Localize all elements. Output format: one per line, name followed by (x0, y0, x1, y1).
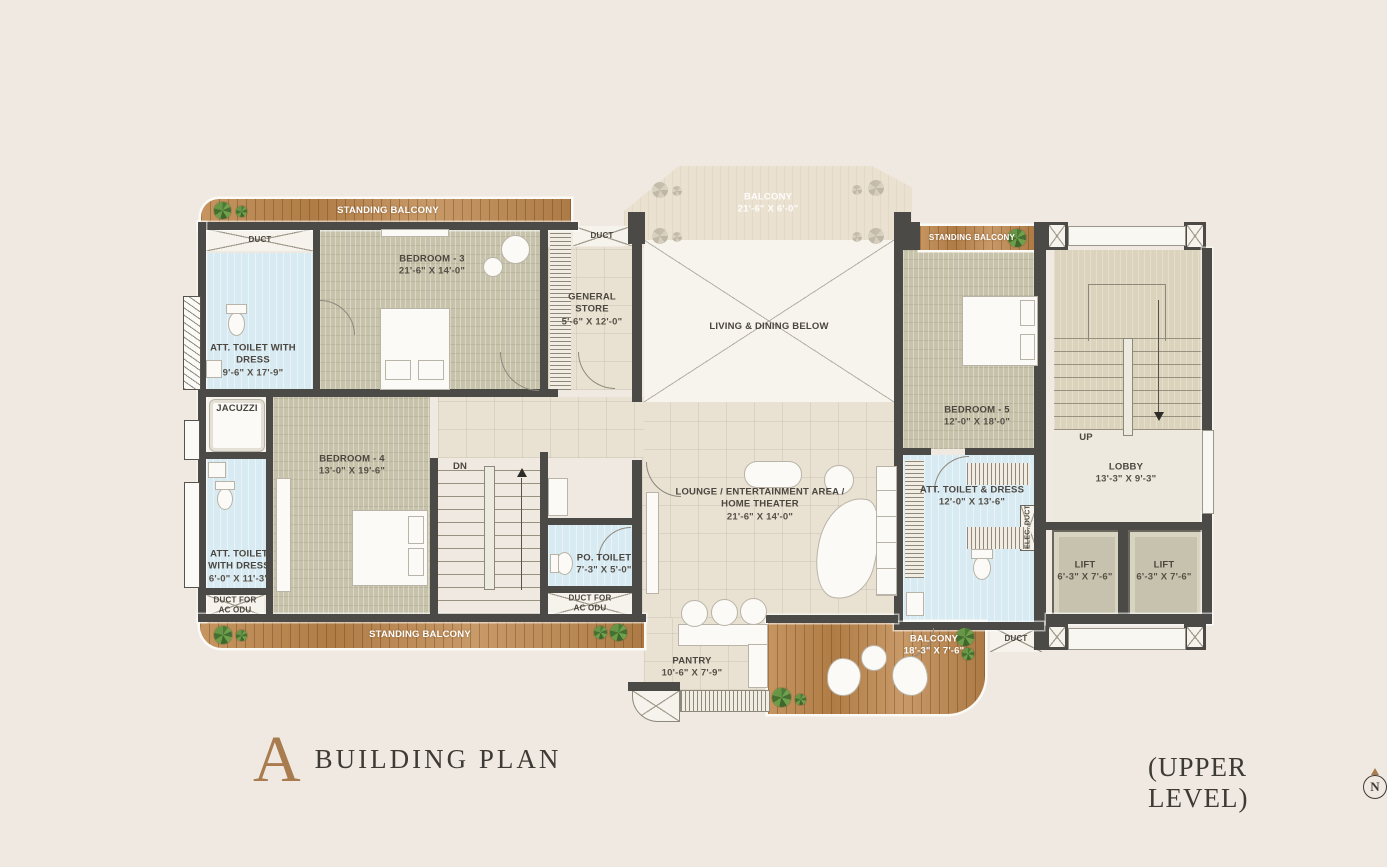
label-jacuzzi: JACUZZI (216, 403, 258, 415)
label-general-store: GENERAL STORE 5'-6" X 12'-0" (554, 291, 630, 328)
wall (204, 452, 266, 459)
window-left (184, 420, 200, 460)
pillow (408, 516, 424, 544)
plant-faded (852, 185, 862, 195)
plant (236, 206, 247, 217)
plant-faded (652, 182, 668, 198)
label-balcony-top: BALCONY 21'-6" X 6'-0" (738, 192, 799, 217)
wall (903, 222, 920, 250)
label-standing-balcony-top: STANDING BALCONY (337, 205, 439, 217)
plant (772, 688, 791, 707)
plant (236, 630, 247, 641)
wall (1118, 530, 1128, 618)
wall (1046, 522, 1204, 530)
wardrobe-toilet5-mid (967, 527, 1031, 549)
label-standing-balcony-bottom: STANDING BALCONY (369, 629, 471, 641)
label-living-dining: LIVING & DINING BELOW (709, 321, 828, 333)
wall (198, 614, 646, 622)
pouf (483, 257, 503, 277)
console-table (381, 229, 449, 237)
plant-faded (852, 232, 862, 242)
plant-faded (868, 228, 884, 244)
wall (540, 222, 548, 397)
label-duct-general-store: DUCT (590, 231, 613, 241)
wall (1202, 248, 1212, 430)
outdoor-table (861, 645, 887, 671)
bar-stool (740, 598, 767, 625)
wc-tank (550, 554, 559, 573)
stair-up-arrow-center (517, 468, 527, 477)
wc-tank (226, 304, 247, 314)
wall (1046, 614, 1212, 624)
window-lobby (1202, 430, 1214, 514)
shelf-unit (876, 466, 897, 596)
label-duct-ac-odu-left: DUCT FOR AC ODU (214, 596, 257, 617)
sink (548, 478, 568, 516)
wc-tank (971, 549, 993, 559)
wardrobe-toilet5-top (967, 463, 1031, 485)
label-pantry: PANTRY 10'-6" X 7'-9" (662, 656, 723, 681)
wall (204, 588, 266, 595)
plant (610, 624, 627, 641)
wardrobe-toilet5-left (905, 460, 924, 578)
label-duct-top-left: DUCT (248, 235, 271, 245)
column-x-mark (1187, 225, 1203, 247)
wall (1034, 222, 1046, 650)
pouf (501, 235, 530, 264)
label-lounge: LOUNGE / ENTERTAINMENT AREA / HOME THEAT… (675, 486, 844, 523)
plant (594, 626, 607, 639)
bar-stool (681, 600, 708, 627)
pantry-counter (678, 624, 768, 646)
wc-tank (215, 481, 235, 490)
wall (965, 448, 1034, 455)
column (628, 212, 645, 244)
stair-rail-center (484, 466, 495, 590)
duct-pantry-corner (632, 690, 680, 722)
hall-floor (438, 397, 644, 458)
label-att-toilet-b5: ATT. TOILET & DRESS 12'-0" X 13'-6" (920, 485, 1024, 510)
floor-plan-canvas: STANDING BALCONY DUCT ATT. TOILET WITH D… (0, 0, 1387, 867)
label-lobby: LOBBY 13'-3" X 9'-3" (1096, 462, 1157, 487)
label-up: UP (1079, 432, 1093, 444)
sink (906, 592, 924, 616)
pillow (1020, 334, 1035, 360)
pillow (408, 548, 424, 576)
wc (228, 312, 245, 336)
plan-title: A BUILDING PLAN (253, 730, 561, 789)
column-x-mark (1187, 627, 1203, 647)
plant-faded (652, 228, 668, 244)
wc (973, 556, 991, 580)
wall (632, 460, 642, 622)
plant (795, 694, 806, 705)
label-lift-2: LIFT 6'-3" X 7'-6" (1136, 560, 1191, 585)
wall (632, 222, 642, 402)
plant (214, 202, 231, 219)
ledge-top-right (1068, 226, 1186, 246)
label-po-toilet: PO. TOILET 7'-3" X 5'-0" (576, 553, 631, 578)
stair-arrow-line-center (521, 478, 522, 590)
sink (208, 462, 226, 478)
wall (200, 389, 558, 397)
label-dn: DN (453, 461, 467, 473)
ledge-bottom-right (1068, 628, 1186, 650)
wc (217, 488, 233, 510)
column-x-mark (1049, 627, 1065, 647)
label-duct-bottom-right: DUCT (1004, 634, 1027, 644)
plan-title-text: BUILDING PLAN (315, 744, 562, 775)
label-standing-balcony-right: STANDING BALCONY (929, 233, 1015, 243)
label-duct-ac-odu-center: DUCT FOR AC ODU (569, 594, 612, 615)
tall-cabinet (646, 492, 659, 594)
label-att-toilet-b4: ATT. TOILET WITH DRESS 6'-0" X 11'-3" (199, 548, 279, 585)
pillow (418, 360, 444, 380)
plant-faded (868, 180, 884, 196)
daybed (744, 461, 802, 488)
plant (214, 626, 232, 644)
label-balcony-bottom: BALCONY 18'-3" X 7'-6" (904, 634, 965, 659)
north-compass-icon: N (1363, 768, 1387, 799)
column-x-mark (1049, 225, 1065, 247)
wall (766, 615, 898, 623)
plant-faded (672, 232, 682, 242)
plant-faded (672, 186, 682, 196)
wall (430, 458, 438, 615)
label-bedroom-5: BEDROOM - 5 12'-0" X 18'-0" (944, 405, 1010, 430)
stair-rail-right (1123, 338, 1133, 436)
window-louver-left (183, 296, 201, 390)
bar-stool (711, 599, 738, 626)
label-att-toilet-b3: ATT. TOILET WITH DRESS 9'-6" X 17'-9" (210, 342, 296, 379)
wall (628, 682, 680, 691)
plan-title-letter: A (253, 730, 301, 789)
plan-level-text: (UPPER LEVEL) (1148, 752, 1347, 814)
sliding-door-pantry (680, 690, 770, 712)
wall (313, 229, 320, 396)
plan-level: (UPPER LEVEL) N (1148, 752, 1387, 814)
pillow (385, 360, 411, 380)
stair-landing-outline (1088, 284, 1166, 341)
outdoor-chair (892, 656, 928, 696)
stair-arrow-line-right (1158, 300, 1159, 412)
wall (540, 518, 640, 525)
stair-down-arrow-right (1154, 412, 1164, 421)
label-bedroom-4: BEDROOM - 4 13'-0" X 19'-6" (319, 454, 385, 479)
label-elec-duct: ELEC. DUCT (1023, 505, 1032, 549)
wall (903, 448, 931, 455)
label-bedroom-3: BEDROOM - 3 21'-6" X 14'-0" (399, 254, 465, 279)
label-lift-1: LIFT 6'-3" X 7'-6" (1057, 560, 1112, 585)
window-left (184, 482, 200, 588)
wall (540, 586, 640, 593)
north-arrow-icon (1371, 768, 1379, 775)
pillow (1020, 300, 1035, 326)
pantry-counter-return (748, 644, 768, 688)
